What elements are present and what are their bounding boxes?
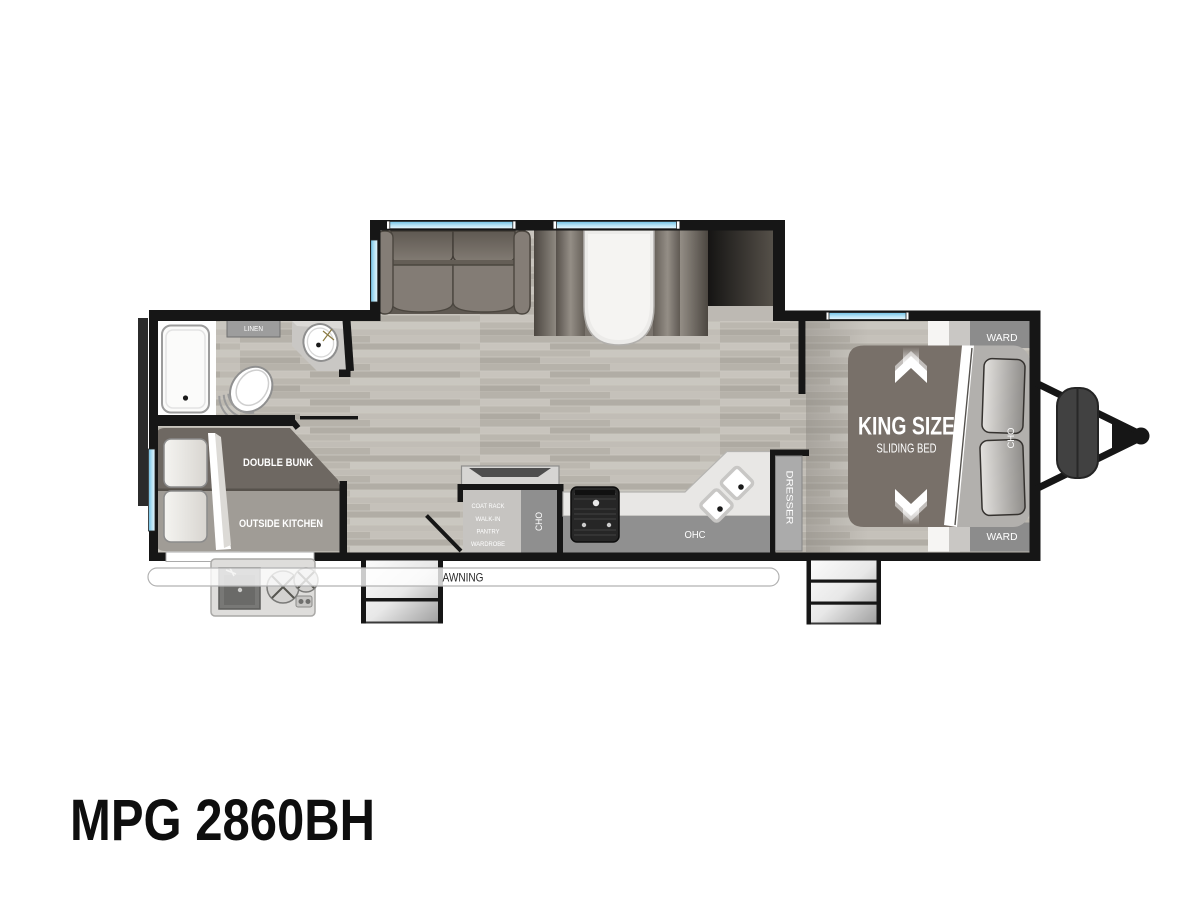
svg-text:LINEN: LINEN [244,326,263,333]
svg-text:DOUBLE BUNK: DOUBLE BUNK [243,457,313,469]
svg-text:KING SIZE: KING SIZE [858,413,955,441]
svg-text:PANTRY: PANTRY [477,529,501,536]
svg-text:OUTSIDE KITCHEN: OUTSIDE KITCHEN [239,518,323,530]
svg-text:CHO: CHO [534,512,544,531]
svg-text:MPG 2860BH: MPG 2860BH [70,788,375,853]
svg-text:WALK-IN: WALK-IN [476,516,501,523]
svg-text:WARD: WARD [987,332,1018,344]
svg-text:WARD: WARD [987,531,1018,543]
svg-text:AWNING: AWNING [443,571,484,585]
svg-text:COAT RACK: COAT RACK [472,503,506,510]
svg-text:WARDROBE: WARDROBE [471,541,506,548]
svg-text:OHC: OHC [685,530,706,541]
svg-text:SLIDING BED: SLIDING BED [877,441,937,456]
svg-text:CHO: CHO [1006,428,1016,449]
svg-text:DRESSER: DRESSER [784,471,795,525]
